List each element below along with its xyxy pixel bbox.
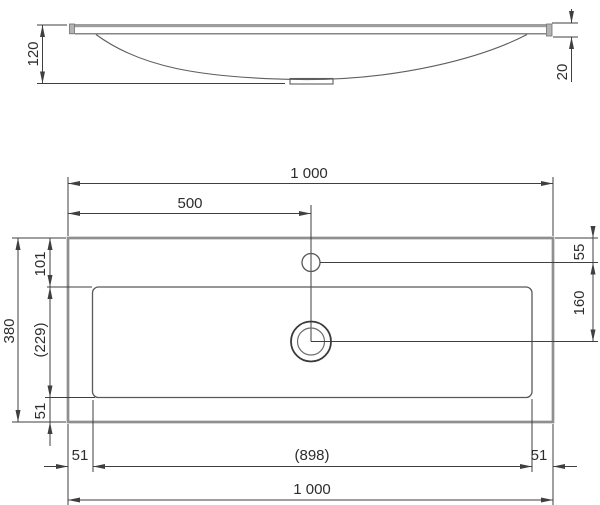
technical-drawing: 120 20 1 000 500 380 1 xyxy=(0,0,600,505)
dim-basin-depth-label: (229) xyxy=(32,322,49,357)
side-bowl-curve xyxy=(96,35,527,80)
dim-faucet-x-label: 500 xyxy=(177,195,202,212)
dim-faucet-y-label: 55 xyxy=(571,244,588,261)
dim-rim-bottom-label: 51 xyxy=(32,403,49,420)
dim-rim-top-label: 101 xyxy=(32,251,49,276)
dim-width-top-label: 1 000 xyxy=(290,165,328,182)
side-slab-left-cap xyxy=(70,24,75,34)
dim-faucet-to-drain-label: 160 xyxy=(571,290,588,315)
dim-side-edge-label: 20 xyxy=(554,64,571,81)
side-view: 120 20 xyxy=(25,9,578,84)
plan-basin-outline xyxy=(93,287,533,398)
plan-view: 1 000 500 380 101 (229) 51 55 160 51 xyxy=(1,165,598,505)
dim-depth-label: 380 xyxy=(1,318,18,343)
dim-rim-right-label: 51 xyxy=(531,447,548,464)
dim-rim-left-label: 51 xyxy=(72,447,89,464)
dim-width-bottom-label: 1 000 xyxy=(293,481,331,498)
washbasin-drawing-canvas: 120 20 1 000 500 380 1 xyxy=(0,0,600,505)
dim-side-height-label: 120 xyxy=(25,41,42,66)
dim-basin-width-label: (898) xyxy=(294,447,329,464)
side-slab-right-cap xyxy=(547,24,553,36)
side-slab-top-edge xyxy=(70,24,552,27)
